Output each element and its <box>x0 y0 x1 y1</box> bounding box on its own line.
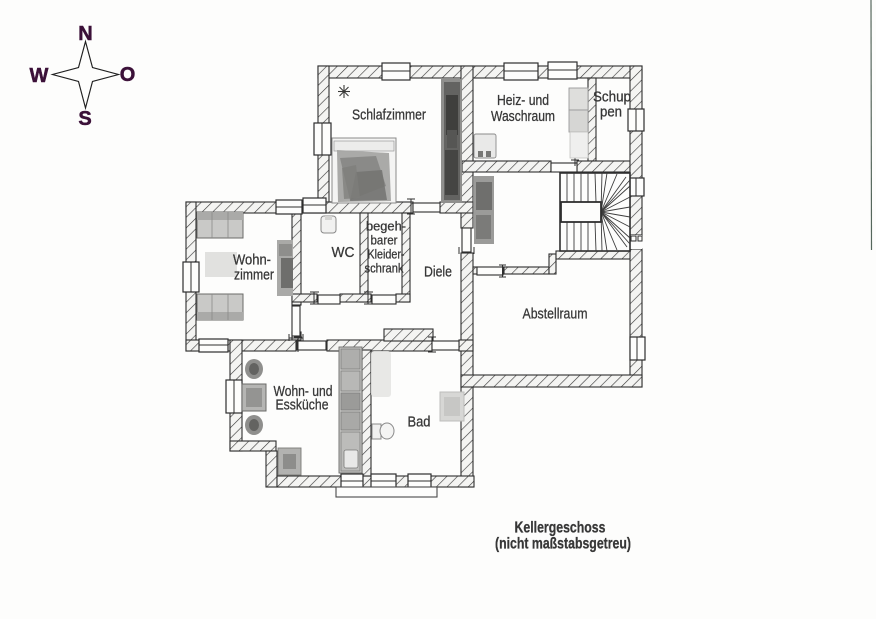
svg-text:zimmer: zimmer <box>234 268 274 284</box>
svg-text:N: N <box>78 23 92 45</box>
svg-text:S: S <box>78 108 91 130</box>
svg-text:Abstellraum: Abstellraum <box>523 307 588 323</box>
svg-text:O: O <box>120 64 136 86</box>
svg-text:Kleider-: Kleider- <box>368 247 405 262</box>
svg-text:Diele: Diele <box>424 265 452 281</box>
svg-text:(nicht maßstabsgetreu): (nicht maßstabsgetreu) <box>495 536 631 553</box>
svg-text:barer: barer <box>371 233 399 248</box>
svg-text:WC: WC <box>332 244 355 261</box>
svg-text:Wohn-: Wohn- <box>233 253 271 269</box>
svg-text:schrank: schrank <box>365 261 404 276</box>
svg-text:Essküche: Essküche <box>276 398 329 414</box>
svg-text:Bad: Bad <box>408 415 431 431</box>
svg-text:Schup: Schup <box>593 90 631 106</box>
svg-text:pen: pen <box>600 105 622 121</box>
svg-text:Heiz- und: Heiz- und <box>497 93 549 109</box>
svg-text:W: W <box>30 65 49 87</box>
svg-text:Waschraum: Waschraum <box>491 109 555 125</box>
svg-text:begeh-: begeh- <box>366 219 406 234</box>
svg-text:Kellergeschoss: Kellergeschoss <box>515 520 606 537</box>
svg-text:Schlafzimmer: Schlafzimmer <box>352 108 426 124</box>
